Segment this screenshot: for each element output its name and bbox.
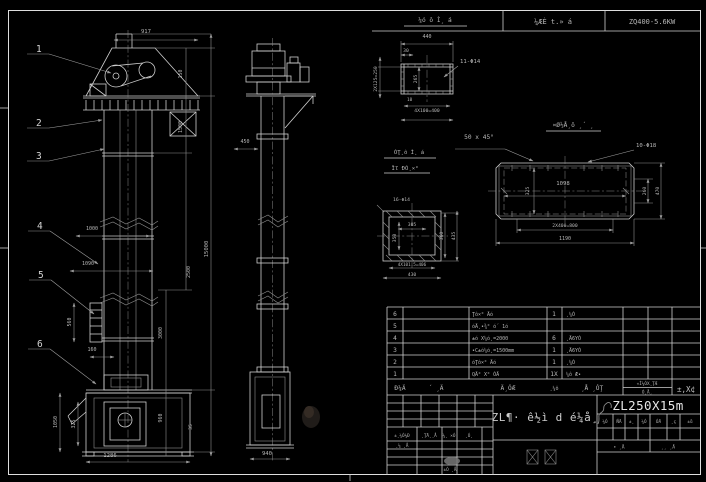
detail-b-title-2: Ïľ ĐÓ¸×° (392, 165, 419, 172)
tb-sign-label-3: ¼¸ ×Ó (443, 432, 456, 439)
dim-boot-height: 960 (158, 413, 164, 422)
engineering-drawing: ¼ÆÈ t.» á ZQ400-5.6KW (0, 0, 706, 482)
tb-rev-cell: ŇÄ (616, 418, 622, 425)
tb-rev-cell: ¼Ó (602, 418, 608, 425)
top-bar-process-label: ¼ÆÈ t.» á (534, 17, 572, 26)
bom-name: QÄ° X° ÓÄ (472, 371, 499, 378)
drawing-title: ZL¶· ê½ì d é¼å¸ (492, 411, 599, 424)
bom-row: 2 óŢô×° Äó 1 ¸¼Ó (393, 359, 575, 366)
balloon-6: 6 (37, 339, 43, 350)
bom-row: 4 ±ó X¼ó¸=2000 6 ¸Ä6YÓ (393, 335, 581, 342)
dim-b-bottom-1: 4X101.5=406 (398, 262, 427, 268)
smudge-artifact (302, 406, 320, 428)
bom-material: ¸¼Ó (566, 311, 575, 318)
bom-name: ±ó X¼ó¸=2000 (472, 335, 508, 342)
part-balloons: 1 2 3 4 5 6 (27, 44, 111, 384)
dim-c-bottom-1: 2X400=800 (552, 223, 578, 229)
bom-header-note-big: ±,X¢ (677, 385, 695, 394)
dim-overall-height: 15000 (204, 241, 210, 258)
dim-c-inner-w: 1098 (556, 181, 570, 187)
tb-sign-label-4: ¸Ó¸ (465, 432, 473, 439)
balloon-2: 2 (36, 118, 42, 129)
motor (300, 67, 309, 82)
tb-sign-label-5: ¸¼ ¸Å (396, 442, 409, 449)
dim-b-bottom-2: 430 (408, 272, 417, 278)
bom-material: ¸¼Ó (566, 359, 575, 366)
model-number: ZL250X15m (612, 398, 683, 413)
dim-c-bottom-2: 1190 (559, 236, 571, 242)
dim-b-inner-h: 350 (392, 234, 398, 243)
gear-reducer (287, 63, 300, 82)
head-pulley (105, 65, 127, 87)
dim-side-flange: 450 (240, 139, 249, 145)
detail-casing-section: ¤Ø½Å¸ô ¸´ ¸ 10-Φ18 1098 325 260 470 2X40… (488, 120, 665, 246)
dim-boot-v2: 325 (71, 419, 77, 428)
detail-c-title: ¤Ø½Å¸ô ¸´ ¸ (553, 120, 594, 129)
balloon-1: 1 (36, 44, 42, 55)
bom-no: 4 (393, 335, 397, 342)
tb-rev-cell: ±ů (687, 418, 693, 425)
bom-name: Ţô×° Äó (472, 311, 493, 318)
detail-a-holes-label: 11-Φ14 (460, 59, 481, 65)
bom-header-dwg: ´ ¸Ä (429, 383, 444, 392)
bom-material: ¸Ä6YÓ (566, 335, 581, 342)
dim-ladder-height: 560 (67, 317, 73, 326)
tb-sign-label-6: ±Ó ¸Å (444, 466, 457, 473)
bom-qty: 6 (552, 335, 556, 342)
dim-b-right-2: 435 (451, 232, 457, 241)
bom-material: ¼ô Æ• (566, 371, 581, 378)
dim-c-left: 325 (525, 187, 531, 196)
top-bar-model-label: ZQ400-5.6KW (629, 18, 676, 26)
chamfer-note-text: 50 x 45° (464, 133, 494, 141)
tb-sheet-right: ¸¸ ¸Å (661, 444, 675, 451)
title-block: ±¸¼Ó¼Đ ¸ŢÄ¸¸Å ¼¸ ×Ó ¸Ó¸ ¸¼ ¸Å ±Ó ¸Å ZL¶·… (387, 395, 700, 475)
chamfer-note: 50 x 45° (455, 133, 533, 161)
dim-a-left: 2X125=250 (373, 66, 379, 92)
bom-material: ¸Ä6YÓ (566, 347, 581, 354)
bom-qty: 1 (552, 347, 556, 354)
bom-row: 5 óÄ¸•¾° ó´ 1ó (393, 323, 508, 330)
dim-a-bottom: 4X100=400 (414, 108, 440, 114)
dim-lower-section: 3000 (158, 327, 164, 339)
bom-qty: 1 (552, 311, 556, 318)
dim-upper-section: 1500 (178, 121, 184, 133)
dim-b-right-1: 360 (439, 232, 445, 241)
stamp-mark (444, 457, 460, 465)
dim-mid-section: 2500 (186, 266, 192, 278)
bom-header-material: ¸Å ¸ÓŢ (581, 383, 604, 392)
dim-a-offset: 30 (403, 48, 409, 54)
cad-drawing-canvas: ¼ÆÈ t.» á ZQ400-5.6KW (0, 0, 706, 482)
tb-rev-cell: ÓÄ (656, 418, 662, 425)
front-view-dimensions: 917 150 1500 2500 3000 960 35 15000 1000… (53, 29, 215, 462)
tb-rev-cell: ¼Ó (641, 418, 647, 425)
detail-c-holes-label: 10-Φ18 (636, 143, 657, 149)
bom-no: 6 (393, 311, 397, 318)
bom-row: 1 QÄ° X° ÓÄ 1X ¼ô Æ• (393, 371, 581, 378)
bom-header-qty: ¸¼ô (549, 385, 558, 392)
tb-rev-cell: ±¸ (629, 420, 634, 425)
dim-boot-v1: 1050 (53, 416, 59, 428)
detail-b-holes-label: 16-Φ14 (393, 197, 410, 203)
bom-row: 6 Ţô×° Äó 1 ¸¼Ó (393, 311, 575, 318)
bom-no: 1 (393, 371, 397, 378)
missing-glyph-box (527, 450, 556, 464)
bom-name: óÄ¸•¾° ó´ 1ó (472, 323, 508, 330)
front-view (68, 30, 200, 462)
dim-boot-width: 1286 (103, 453, 116, 459)
dim-side-width: 940 (262, 451, 272, 457)
dim-a-width: 440 (422, 34, 431, 40)
dim-b-inner-w: 305 (408, 222, 417, 228)
dim-mid-width-2: 1090 (82, 261, 94, 267)
detail-a-title: ¼ó ô Ì¸ á (418, 15, 452, 24)
bom-no: 2 (393, 359, 397, 366)
bom-row: 3 •C±ó¼ó¸=1500mm 1 ¸Ä6YÓ (393, 347, 581, 354)
dim-base-height: 35 (188, 424, 194, 430)
tb-rev-cell: ¸ç (671, 420, 677, 425)
dim-c-right-2: 470 (655, 187, 661, 196)
dim-c-right-1: 260 (642, 187, 648, 196)
drive-pulley (139, 62, 155, 78)
tb-sign-label-1: ±¸¼Ó¼Đ (394, 432, 410, 439)
bom-qty: 1X (550, 371, 558, 378)
tb-sign-label-2: ¸ŢÄ¸¸Å (421, 432, 437, 439)
balloon-4: 4 (37, 221, 43, 232)
dim-mid-width-1: 1000 (86, 226, 98, 232)
bom-header-name: Ä¸ÓÆ (501, 383, 516, 392)
bom-header-note-sub: Ó¸Å¸ (642, 389, 652, 396)
dim-a-inner: 265 (413, 75, 419, 84)
dim-ladder-width: 160 (87, 347, 96, 353)
bom-name: óŢô×° Äó (472, 359, 496, 366)
detail-b-title-1: ÓŢ¸ô Ì¸ á (394, 149, 424, 156)
dim-head-height: 150 (178, 69, 184, 78)
tb-sheet-left: • ¸Å (613, 444, 624, 451)
bom-name: •C±ó¼ó¸=1500mm (472, 347, 514, 354)
bom-no: 5 (393, 323, 397, 330)
bom-header-note-small: «Ì¼ÓX¸ŢÆ (637, 380, 658, 387)
bom-no: 3 (393, 347, 397, 354)
dim-a-small: 10 (407, 97, 413, 103)
bom-table: 6 Ţô×° Äó 1 ¸¼Ó 5 óÄ¸•¾° ó´ 1ó 4 ±ó X¼ó¸… (387, 307, 700, 475)
bom-header-no: Đ¼Ä (394, 383, 405, 392)
side-view: 450 940 (234, 38, 316, 462)
bom-qty: 1 (552, 359, 556, 366)
balloon-3: 3 (36, 151, 42, 162)
ladder (90, 303, 102, 342)
boot-side (250, 372, 290, 445)
detail-square-flange: ÓŢ¸ô Ì¸ á Ïľ ĐÓ¸×° 16-Φ14 305 350 360 43… (377, 149, 459, 278)
balloon-5: 5 (38, 270, 44, 281)
